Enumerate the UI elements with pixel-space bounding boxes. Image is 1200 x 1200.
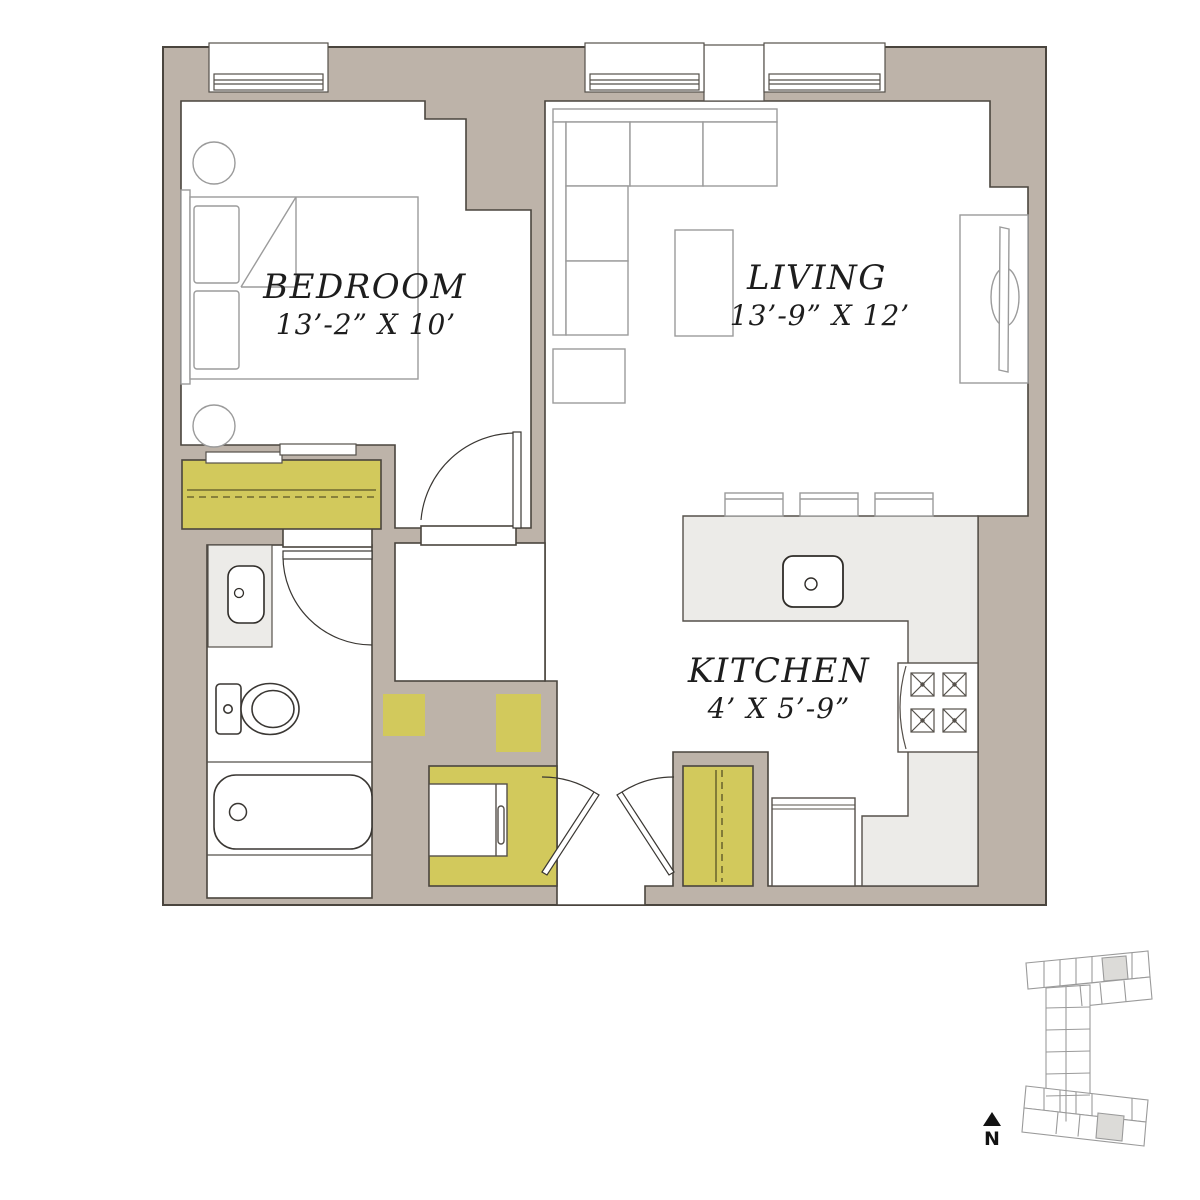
north-label: N xyxy=(984,1130,1000,1149)
room-hall xyxy=(395,543,545,681)
bedroom-dimensions: 13’-2” X 10’ xyxy=(276,311,456,339)
kitchen-sink xyxy=(783,556,843,607)
vanity xyxy=(208,545,272,647)
nook-right xyxy=(496,694,541,752)
ottoman xyxy=(553,349,625,403)
bedroom-door-opening xyxy=(421,526,516,545)
bathtub xyxy=(207,762,372,855)
entry-closet xyxy=(683,766,753,886)
coffee-table xyxy=(675,230,733,336)
nightstand-bottom xyxy=(193,405,235,447)
stove xyxy=(898,663,978,752)
nightstand-top xyxy=(193,142,235,184)
kitchen-label: KITCHEN xyxy=(688,654,870,688)
washer-dryer xyxy=(429,784,507,856)
floorplan-page: BEDROOM 13’-2” X 10’ LIVING 13’-9” X 12’… xyxy=(0,0,1200,1200)
bedroom-window xyxy=(209,43,328,92)
kitchen-dimensions: 4’ X 5’-9” xyxy=(708,695,851,723)
bathroom-door-opening xyxy=(283,527,372,547)
refrigerator xyxy=(772,798,855,886)
living-window-left xyxy=(585,43,704,92)
north-arrow-icon xyxy=(983,1112,1001,1126)
living-window-right xyxy=(764,43,885,92)
building-key-plan xyxy=(1022,951,1152,1146)
floor-plan-drawing xyxy=(0,0,1200,1200)
tv-console xyxy=(960,215,1028,383)
nook-left xyxy=(383,694,425,736)
bedroom-label: BEDROOM xyxy=(263,270,467,304)
toilet xyxy=(216,684,299,735)
living-dimensions: 13’-9” X 12’ xyxy=(730,302,910,330)
living-label: LIVING xyxy=(747,261,887,295)
window-pier xyxy=(704,45,764,101)
tv xyxy=(999,227,1009,372)
bedroom-closet xyxy=(182,460,381,529)
bar-stools xyxy=(725,493,933,516)
